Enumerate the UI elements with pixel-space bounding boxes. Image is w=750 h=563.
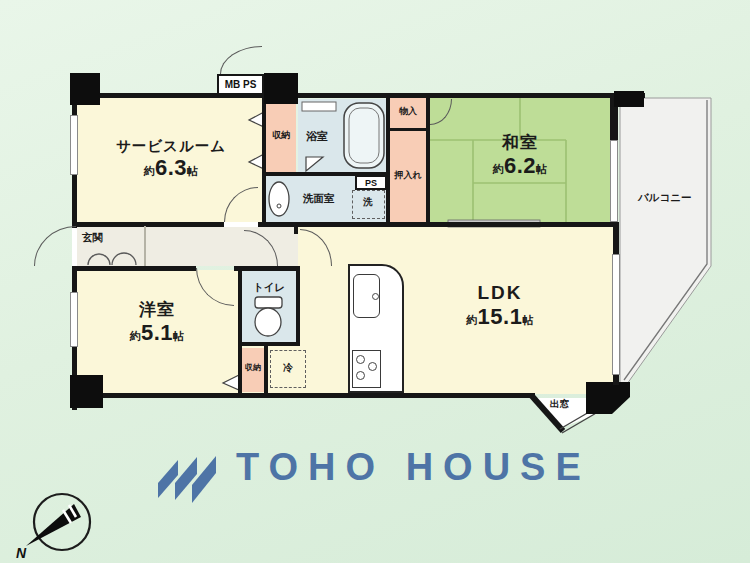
toho-house-logo-text: TOHO HOUSE xyxy=(236,446,591,489)
balcony-label: バルコニー xyxy=(638,191,691,203)
door-gap-service xyxy=(224,222,258,227)
washer-label: 洗 xyxy=(363,197,373,208)
pillar-top-left xyxy=(70,73,100,105)
service-room-label: サービスルーム 約6.3帖 xyxy=(86,138,256,180)
wall-toilet-bottom xyxy=(238,342,300,346)
fridge-label: 冷 xyxy=(283,362,293,374)
washitsu-label: 和室 約6.2帖 xyxy=(445,133,595,178)
closet-hall-label: 収納 xyxy=(266,130,296,140)
wall-corridor-ldk-stub xyxy=(294,226,298,234)
youshitsu-label: 洋室 約5.1帖 xyxy=(82,300,232,345)
pillar-top-right xyxy=(614,91,644,107)
meter-box: MB PS xyxy=(217,74,264,95)
toho-house-logo-icon xyxy=(148,436,222,508)
toilet-bowl xyxy=(255,308,281,336)
compass-n-label: N xyxy=(16,545,27,561)
toilet-tank xyxy=(255,297,282,308)
closet-bedroom-label: 収納 xyxy=(240,363,266,372)
pillar-bottom-left xyxy=(70,375,103,408)
bay-window-label: 出窓 xyxy=(550,399,569,410)
pillar-bottom-right xyxy=(586,382,630,414)
washroom-sink xyxy=(269,182,289,216)
bathroom-label: 浴室 xyxy=(306,130,328,143)
genkan-scallops xyxy=(88,253,136,265)
genkan-corridor-line xyxy=(144,226,146,266)
wall-ldk-east-bottom xyxy=(613,375,619,385)
wall-youshitsu-right xyxy=(238,266,242,396)
wall-top xyxy=(96,93,645,98)
wall-ldk-east-top xyxy=(613,222,619,254)
monoire-label: 物入 xyxy=(390,106,426,116)
bathtub xyxy=(344,103,384,168)
oshiire-label: 押入れ xyxy=(390,170,426,180)
window-service xyxy=(70,115,78,175)
wall-service-right xyxy=(262,93,266,227)
wall-corridor-bottom-2 xyxy=(234,266,298,271)
wall-toilet-right xyxy=(296,266,300,346)
compass-icon: N xyxy=(14,484,104,562)
wall-bottom xyxy=(76,393,535,398)
pillar-top-mid xyxy=(264,73,298,104)
washroom-label: 洗面室 xyxy=(303,192,335,204)
stove-burner-2 xyxy=(368,362,377,371)
window-ldk-balcony xyxy=(612,254,620,375)
window-washitsu-balcony xyxy=(610,140,618,222)
meter-box-label: MB PS xyxy=(225,79,257,90)
floor-plan-page: MB PS PS サービスルーム 約6.3帖 和室 約6.2帖 洋室 約5.1帖… xyxy=(0,0,750,563)
stove-burner-1 xyxy=(356,355,365,364)
toilet-label: トイレ xyxy=(253,281,285,293)
genkan-label: 玄関 xyxy=(82,231,103,243)
balcony-floor xyxy=(620,98,711,384)
wall-monoire-divider xyxy=(388,128,428,131)
wall-corridor-bottom-1 xyxy=(76,266,196,271)
kitchen-faucet xyxy=(372,293,379,300)
wall-mid-east xyxy=(258,222,616,227)
stove-burner-3 xyxy=(356,371,365,380)
window-youshitsu xyxy=(70,292,78,347)
bath-counter xyxy=(302,102,336,111)
wall-mid-west xyxy=(76,222,224,227)
ldk-label: LDK 約15.1帖 xyxy=(425,282,575,329)
pipe-space-label: PS xyxy=(365,178,377,188)
pipe-space-box: PS xyxy=(355,175,387,190)
